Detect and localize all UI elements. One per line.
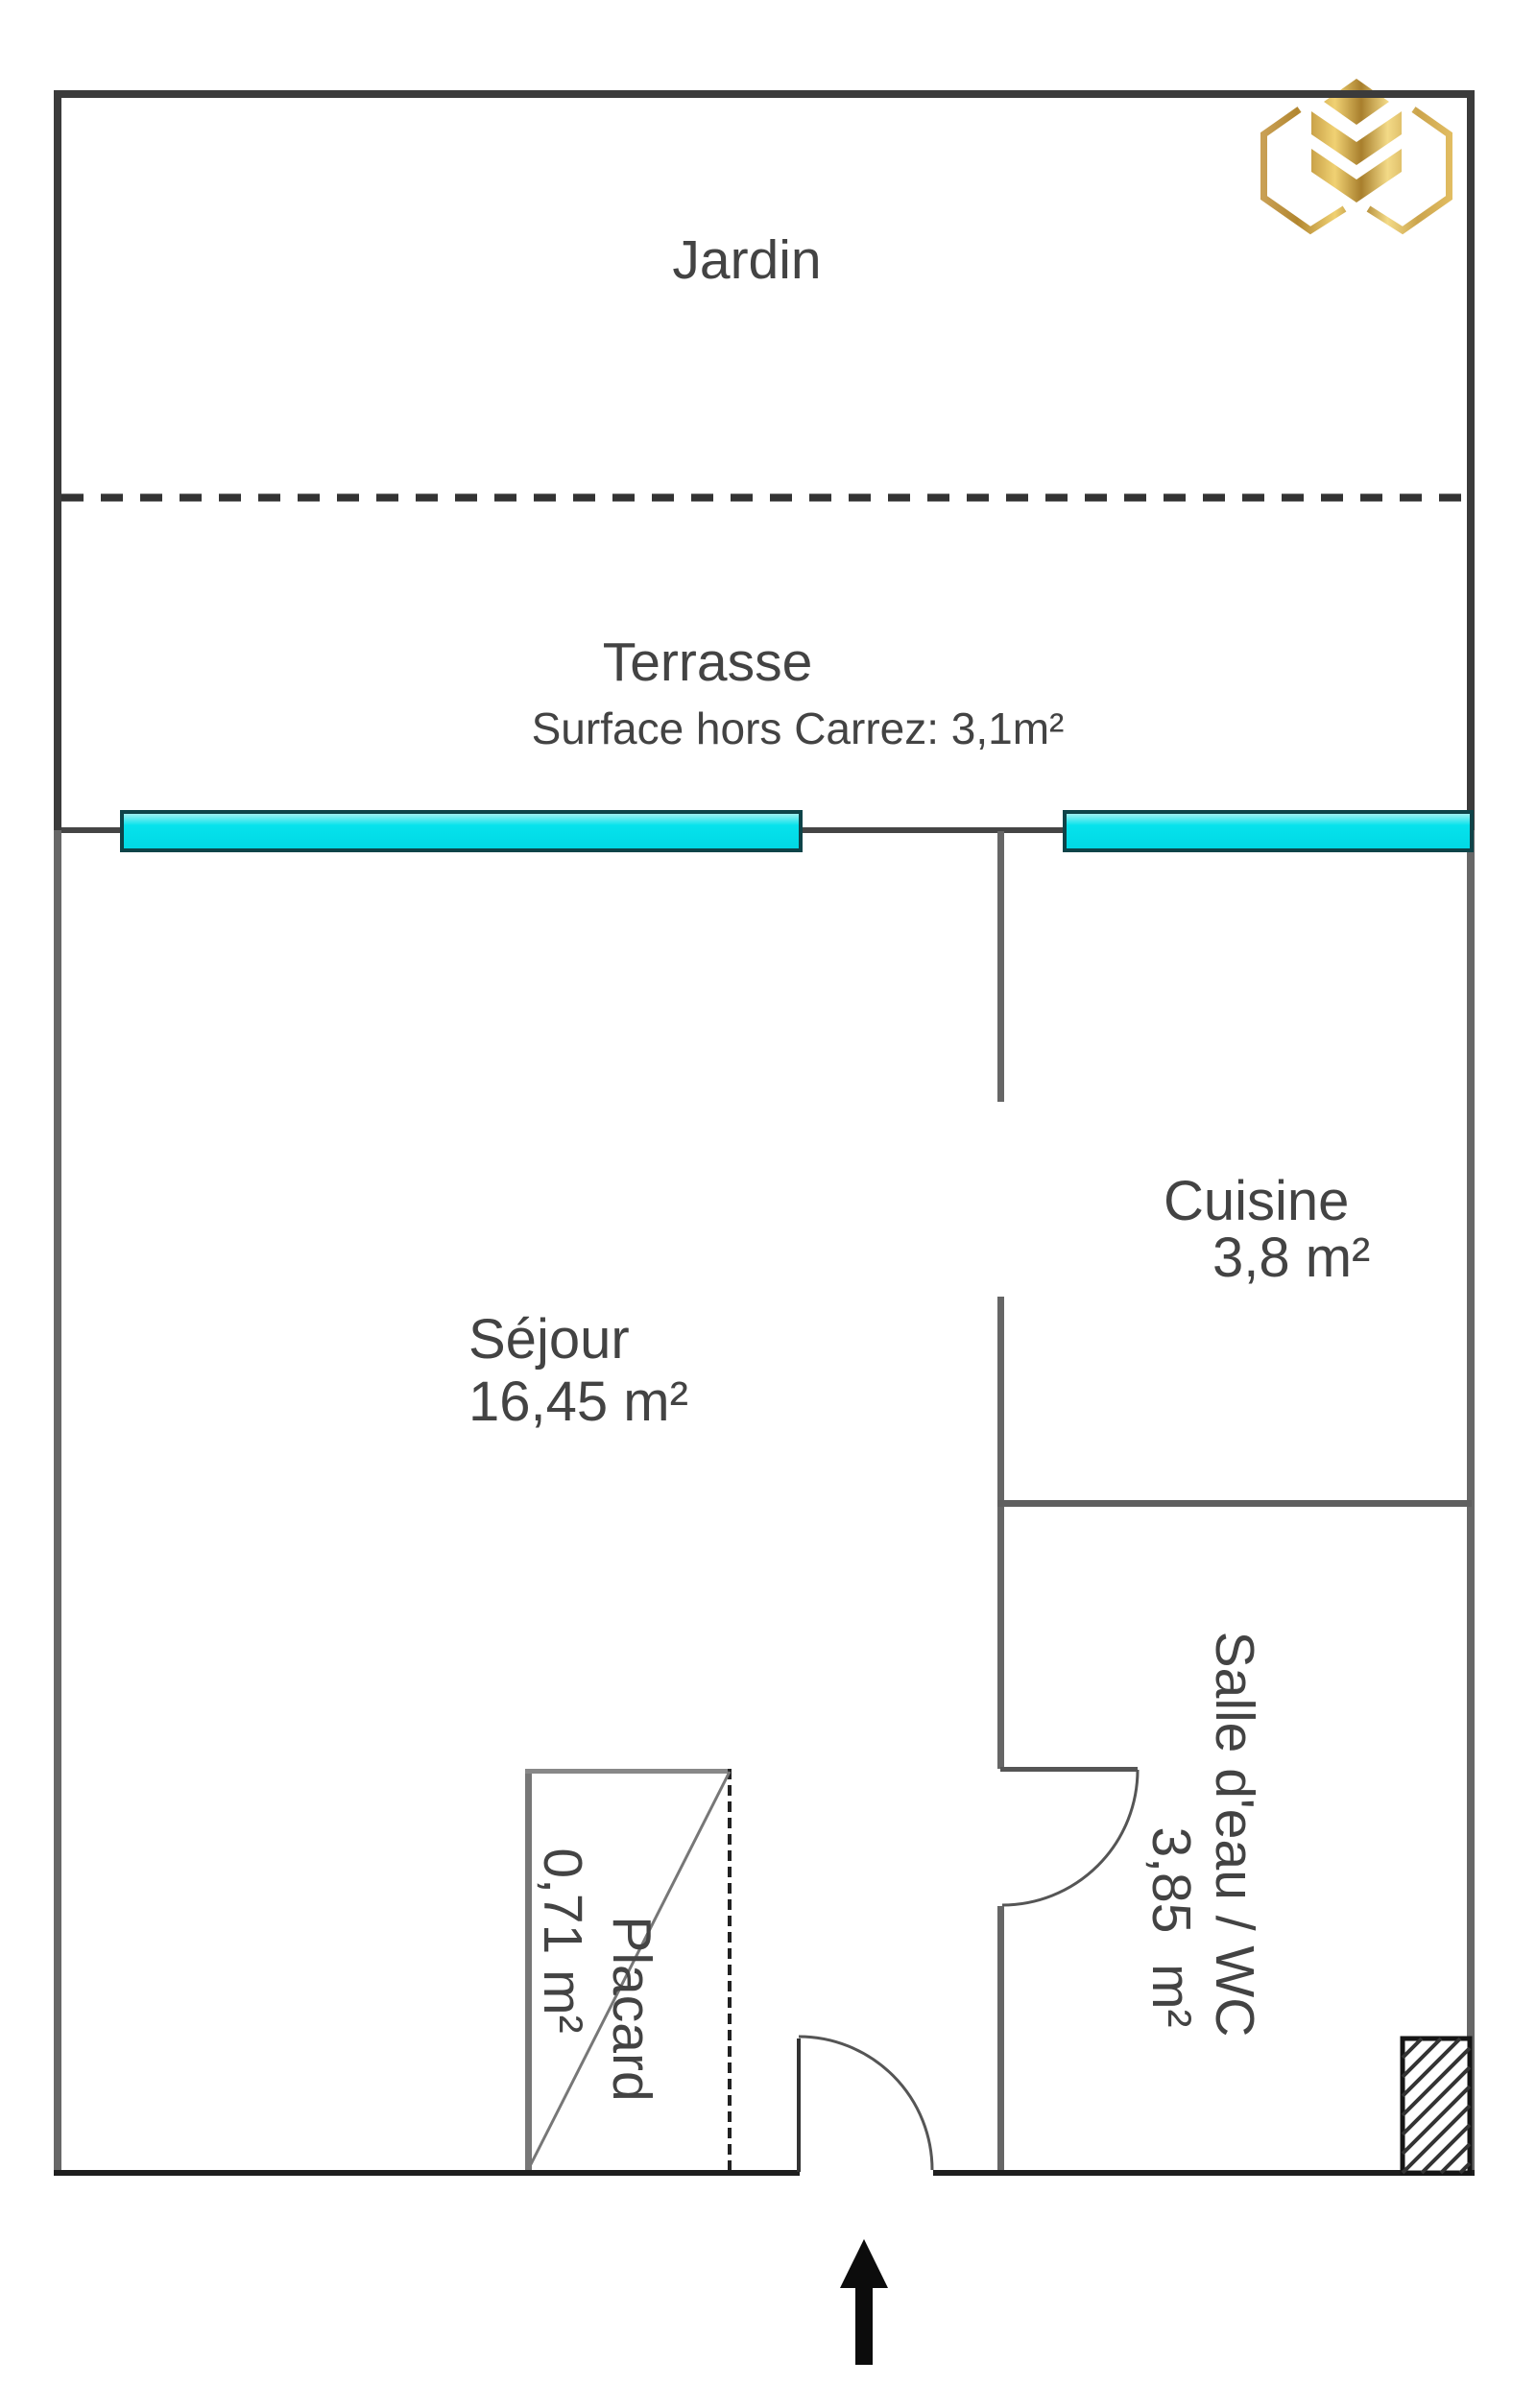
svg-text:3,8 m²: 3,8 m² bbox=[1212, 1227, 1370, 1289]
svg-text:16,45 m²: 16,45 m² bbox=[468, 1371, 688, 1433]
svg-text:Séjour: Séjour bbox=[468, 1308, 630, 1371]
svg-text:Cuisine: Cuisine bbox=[1164, 1170, 1349, 1232]
svg-text:3,85 m²: 3,85 m² bbox=[1140, 1826, 1202, 2027]
svg-text:Jardin: Jardin bbox=[672, 229, 821, 291]
svg-text:Placard: Placard bbox=[601, 1916, 662, 2101]
svg-text:Surface hors Carrez: 3,1m²: Surface hors Carrez: 3,1m² bbox=[532, 703, 1065, 753]
svg-text:0,71 m²: 0,71 m² bbox=[532, 1848, 593, 2033]
svg-text:Terrasse: Terrasse bbox=[603, 632, 813, 693]
svg-text:Salle d'eau / WC: Salle d'eau / WC bbox=[1204, 1632, 1265, 2038]
